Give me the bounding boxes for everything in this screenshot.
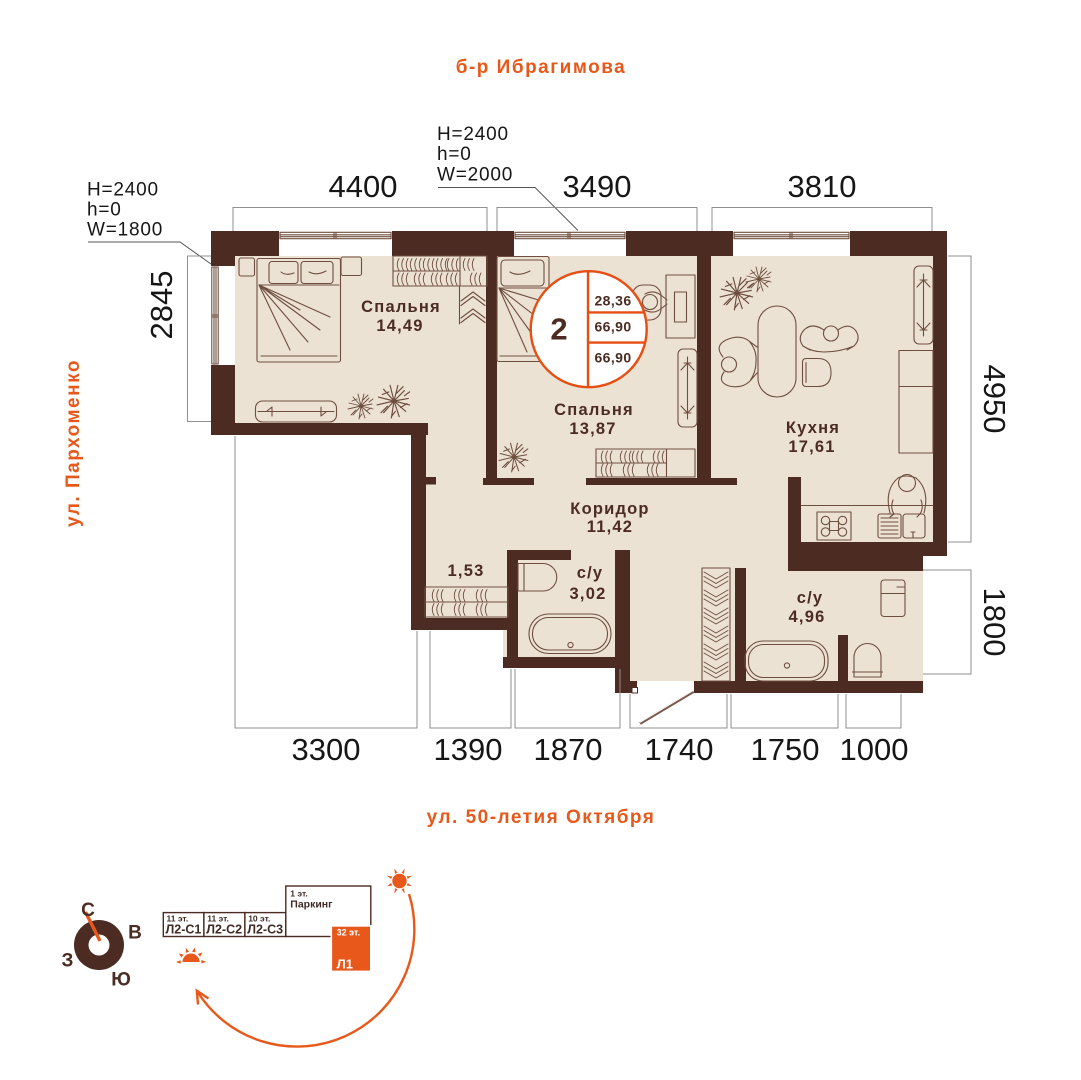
svg-text:1390: 1390 xyxy=(434,732,503,767)
svg-text:3,02: 3,02 xyxy=(570,585,607,603)
svg-text:1,53: 1,53 xyxy=(448,562,485,580)
svg-text:В: В xyxy=(128,923,142,944)
svg-text:3490: 3490 xyxy=(563,169,632,204)
svg-text:H=2400: H=2400 xyxy=(87,180,159,201)
svg-text:1870: 1870 xyxy=(534,732,603,767)
svg-text:Коридор: Коридор xyxy=(570,500,649,518)
svg-text:б-р Ибрагимова: б-р Ибрагимова xyxy=(456,57,627,78)
svg-text:ул. 50-летия Октября: ул. 50-летия Октября xyxy=(427,807,656,828)
svg-text:4,96: 4,96 xyxy=(789,608,826,626)
svg-text:11,42: 11,42 xyxy=(587,518,633,536)
svg-text:28,36: 28,36 xyxy=(594,293,631,309)
svg-text:66,90: 66,90 xyxy=(594,350,631,366)
svg-text:h=0: h=0 xyxy=(87,200,122,221)
svg-text:1000: 1000 xyxy=(840,732,909,767)
svg-text:13,87: 13,87 xyxy=(569,420,616,438)
svg-text:3810: 3810 xyxy=(788,169,857,204)
svg-text:С: С xyxy=(81,900,95,921)
svg-text:Л2-С2: Л2-С2 xyxy=(206,923,242,937)
svg-text:Л2-С3: Л2-С3 xyxy=(247,923,283,937)
svg-text:h=0: h=0 xyxy=(437,144,472,165)
svg-text:1 эт.: 1 эт. xyxy=(290,889,307,899)
svg-text:с/у: с/у xyxy=(577,564,604,582)
svg-text:ул. Пархоменко: ул. Пархоменко xyxy=(63,359,84,527)
svg-text:с/у: с/у xyxy=(797,589,824,607)
svg-text:1800: 1800 xyxy=(977,588,1012,657)
svg-text:1750: 1750 xyxy=(751,732,820,767)
svg-text:66,90: 66,90 xyxy=(594,319,631,335)
svg-text:3300: 3300 xyxy=(292,732,361,767)
svg-text:Л1: Л1 xyxy=(337,957,353,972)
svg-text:H=2400: H=2400 xyxy=(437,124,509,145)
svg-text:Спальня: Спальня xyxy=(361,298,441,316)
svg-text:Паркинг: Паркинг xyxy=(290,899,333,911)
svg-text:W=2000: W=2000 xyxy=(437,165,513,186)
svg-text:4950: 4950 xyxy=(977,365,1012,434)
svg-text:2: 2 xyxy=(550,312,567,347)
svg-text:2845: 2845 xyxy=(144,271,179,340)
svg-text:W=1800: W=1800 xyxy=(87,220,163,241)
svg-text:Кухня: Кухня xyxy=(786,419,840,437)
svg-text:4400: 4400 xyxy=(329,169,398,204)
svg-text:14,49: 14,49 xyxy=(376,317,423,335)
svg-text:32 эт.: 32 эт. xyxy=(337,928,360,938)
svg-text:17,61: 17,61 xyxy=(788,438,835,456)
svg-text:1740: 1740 xyxy=(645,732,714,767)
svg-text:Спальня: Спальня xyxy=(554,401,634,419)
svg-text:Л2-С1: Л2-С1 xyxy=(166,923,202,937)
svg-text:Ю: Ю xyxy=(111,970,131,991)
svg-text:З: З xyxy=(62,951,74,972)
